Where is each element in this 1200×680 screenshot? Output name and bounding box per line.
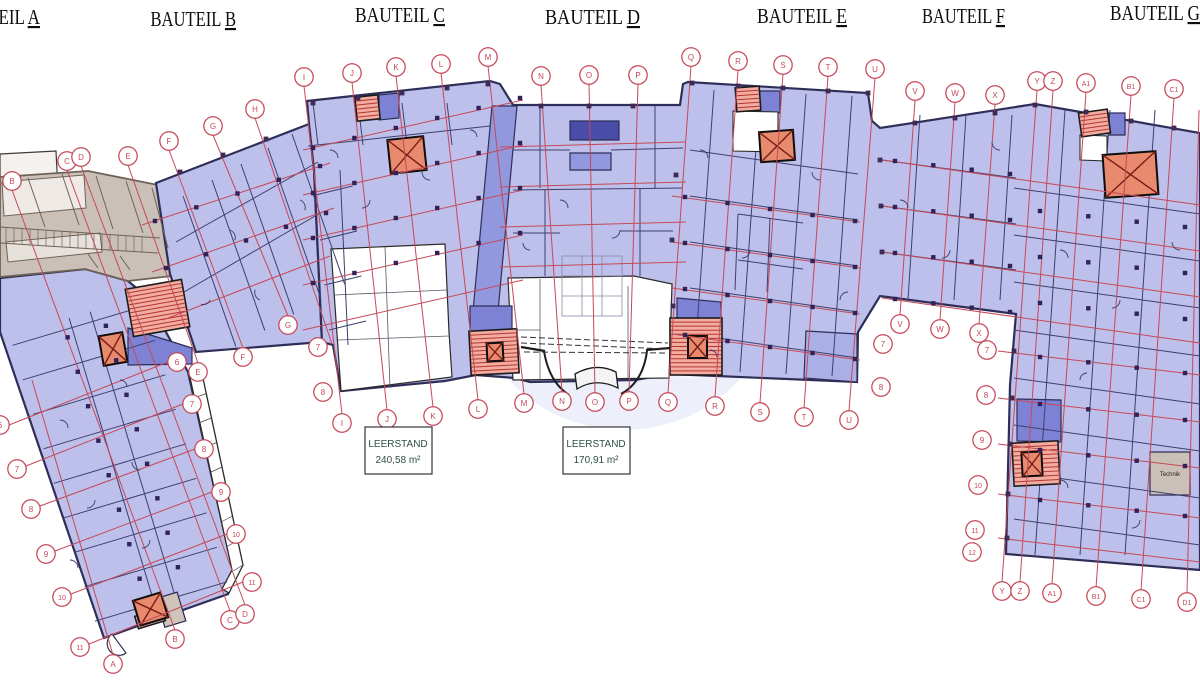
svg-text:G: G [285,321,291,330]
svg-text:T: T [826,63,831,72]
svg-text:10: 10 [974,483,982,490]
svg-text:C1: C1 [1170,87,1179,94]
svg-text:W: W [951,89,959,98]
svg-text:Q: Q [688,53,694,62]
svg-text:U: U [846,416,852,425]
svg-text:A1: A1 [1048,591,1057,598]
svg-text:T: T [802,413,807,422]
svg-text:LEERSTAND: LEERSTAND [368,439,427,450]
svg-text:O: O [586,71,592,80]
svg-text:Z: Z [1018,587,1023,596]
svg-text:9: 9 [44,550,49,559]
svg-text:Y: Y [1034,77,1040,86]
svg-text:7: 7 [190,400,195,409]
svg-text:G: G [210,122,216,131]
svg-text:E: E [195,368,200,377]
svg-text:S: S [757,408,762,417]
svg-text:X: X [992,91,998,100]
svg-text:O: O [592,398,598,407]
svg-text:A1: A1 [1082,81,1091,88]
svg-text:W: W [936,325,944,334]
svg-text:L: L [439,60,444,69]
svg-text:BAUTEIL C: BAUTEIL C [355,3,445,27]
svg-text:M: M [521,399,528,408]
svg-text:BAUTEIL D: BAUTEIL D [545,5,640,29]
svg-text:7: 7 [881,340,886,349]
svg-text:11: 11 [76,645,83,652]
svg-text:M: M [485,53,492,62]
svg-text:N: N [538,72,544,81]
svg-text:6: 6 [175,358,180,367]
svg-text:L: L [476,405,481,414]
svg-text:C1: C1 [1137,597,1146,604]
svg-text:7: 7 [985,346,990,355]
svg-text:B: B [9,177,14,186]
svg-text:F: F [241,353,246,362]
svg-text:BAUTEIL B: BAUTEIL B [151,7,237,31]
svg-text:F: F [167,137,172,146]
svg-text:D: D [78,153,84,162]
svg-text:C: C [64,157,70,166]
svg-text:P: P [635,71,640,80]
svg-text:A: A [110,660,116,669]
svg-text:BAUTEIL E: BAUTEIL E [757,4,847,28]
svg-text:X: X [976,329,982,338]
svg-text:I: I [303,73,305,82]
svg-text:LEERSTAND: LEERSTAND [566,439,625,450]
svg-text:170,91 m²: 170,91 m² [573,455,619,466]
svg-text:8: 8 [29,505,34,514]
svg-text:J: J [350,69,354,78]
svg-text:10: 10 [232,532,240,539]
svg-text:12: 12 [968,550,976,557]
svg-text:D: D [242,610,248,619]
svg-text:S: S [780,61,785,70]
svg-text:9: 9 [219,488,224,497]
svg-text:B1: B1 [1127,84,1136,91]
svg-text:Z: Z [1051,77,1056,86]
svg-text:K: K [430,412,436,421]
svg-text:U: U [872,65,878,74]
svg-text:9: 9 [980,436,985,445]
svg-text:D1: D1 [1183,600,1192,607]
svg-text:BAUTEIL G: BAUTEIL G [1110,1,1200,25]
svg-text:11: 11 [248,580,255,587]
svg-text:Y: Y [999,587,1005,596]
svg-text:8: 8 [984,391,989,400]
svg-text:Technik: Technik [1160,472,1181,478]
svg-text:240,58 m²: 240,58 m² [375,455,421,466]
svg-text:8: 8 [321,388,326,397]
svg-text:BAUTEIL F: BAUTEIL F [922,4,1005,28]
svg-text:B: B [172,635,177,644]
svg-text:BAUTEIL A: BAUTEIL A [0,5,40,29]
svg-text:N: N [559,397,565,406]
svg-text:8: 8 [202,445,207,454]
svg-text:K: K [393,63,399,72]
svg-text:P: P [626,397,631,406]
svg-text:C: C [227,616,233,625]
svg-text:V: V [897,320,903,329]
svg-text:B1: B1 [1092,594,1101,601]
svg-text:I: I [341,419,343,428]
svg-text:10: 10 [58,595,66,602]
svg-text:7: 7 [316,343,321,352]
svg-text:7: 7 [15,465,20,474]
svg-text:R: R [735,57,741,66]
svg-text:11: 11 [971,528,978,535]
svg-text:R: R [712,402,718,411]
svg-text:H: H [252,105,258,114]
svg-text:Q: Q [665,398,671,407]
svg-text:8: 8 [879,383,884,392]
svg-text:V: V [912,87,918,96]
svg-text:E: E [125,152,130,161]
svg-text:J: J [385,415,389,424]
